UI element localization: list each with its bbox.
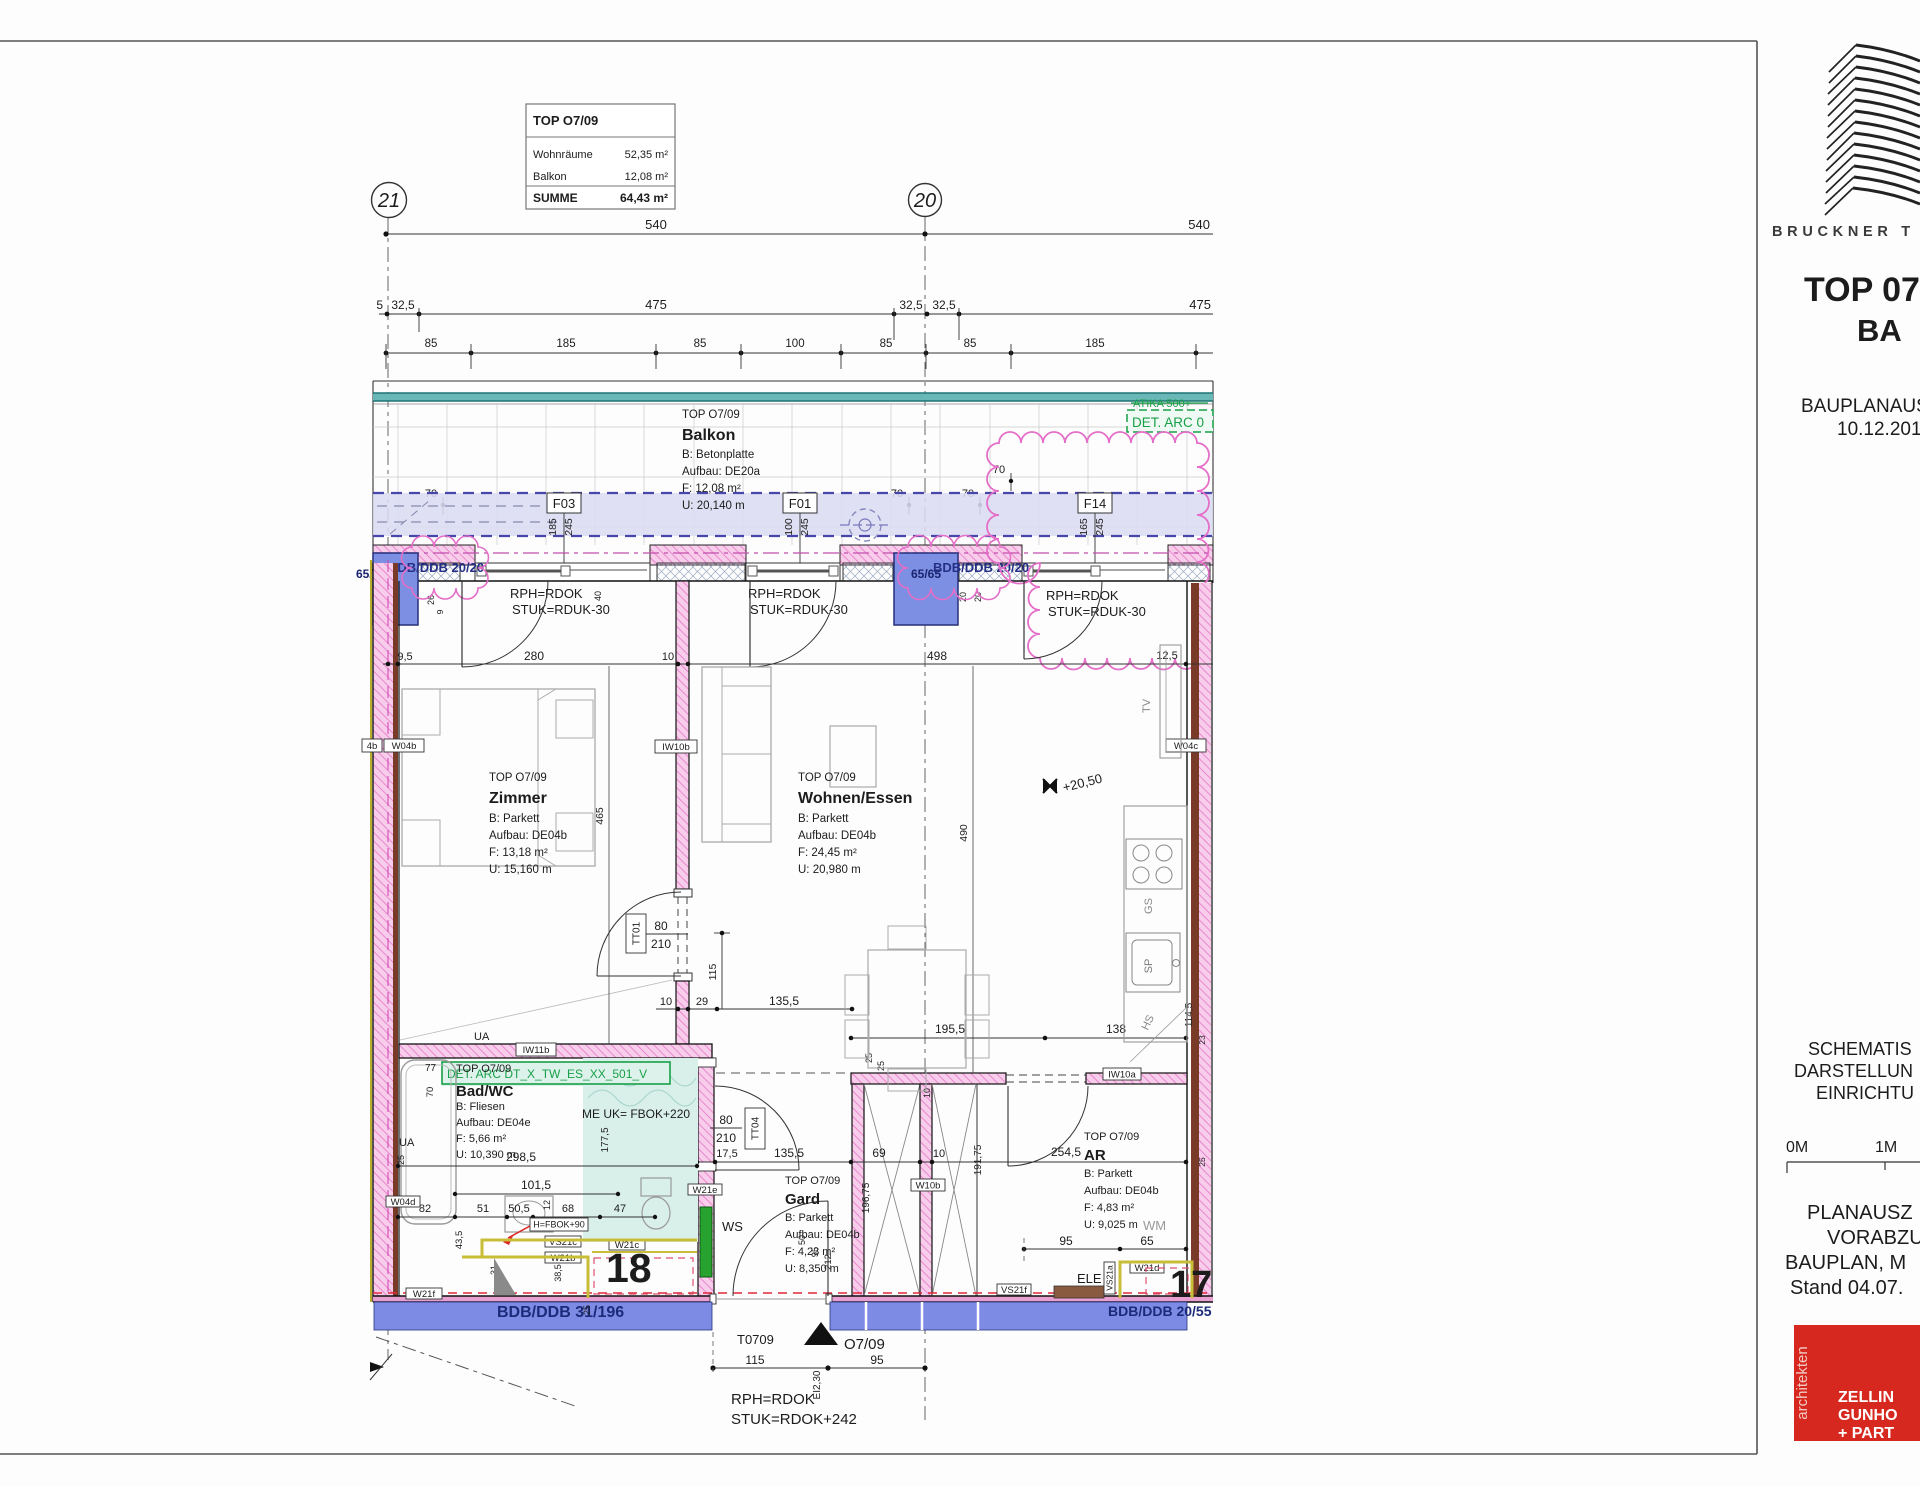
- svg-text:Balkon: Balkon: [682, 427, 735, 444]
- svg-text:W04d: W04d: [391, 1197, 416, 1208]
- svg-text:W21f: W21f: [413, 1289, 436, 1300]
- svg-text:498: 498: [927, 649, 947, 663]
- svg-text:245: 245: [799, 518, 811, 536]
- svg-text:IW10b: IW10b: [662, 742, 689, 753]
- svg-text:85: 85: [425, 338, 438, 350]
- svg-text:F14: F14: [1084, 496, 1106, 511]
- svg-text:F: 4,83 m²: F: 4,83 m²: [1084, 1202, 1134, 1214]
- svg-text:80: 80: [719, 1113, 733, 1127]
- svg-text:10: 10: [660, 996, 672, 1008]
- svg-text:BDB/DDB 31/196: BDB/DDB 31/196: [497, 1304, 624, 1321]
- svg-text:ATIKA 500+: ATIKA 500+: [1133, 398, 1191, 410]
- svg-text:IW11b: IW11b: [523, 1045, 550, 1056]
- svg-text:B: Betonplatte: B: Betonplatte: [682, 449, 754, 461]
- svg-text:VS21f: VS21f: [1001, 1285, 1027, 1296]
- svg-text:architekten: architekten: [1794, 1346, 1811, 1419]
- svg-text:135,5: 135,5: [774, 1146, 804, 1160]
- svg-text:BA: BA: [1857, 313, 1902, 348]
- svg-text:254,5: 254,5: [1051, 1145, 1081, 1159]
- svg-text:23: 23: [1197, 1035, 1207, 1045]
- svg-text:12: 12: [542, 1200, 552, 1210]
- svg-text:AR: AR: [1084, 1147, 1106, 1164]
- svg-text:10: 10: [662, 651, 674, 663]
- svg-text:WS: WS: [722, 1219, 743, 1234]
- svg-text:50,5: 50,5: [508, 1203, 529, 1215]
- svg-text:SP: SP: [1143, 959, 1155, 974]
- svg-text:RPH=RDOK: RPH=RDOK: [731, 1391, 815, 1408]
- svg-text:135,5: 135,5: [769, 994, 799, 1008]
- svg-text:TV: TV: [1141, 698, 1153, 713]
- svg-text:U: 15,160 m: U: 15,160 m: [489, 864, 552, 876]
- svg-text:540: 540: [645, 217, 667, 232]
- svg-text:80: 80: [654, 919, 668, 933]
- svg-text:475: 475: [645, 297, 667, 312]
- svg-text:5: 5: [376, 298, 383, 312]
- svg-text:100: 100: [783, 518, 795, 536]
- svg-text:10.12.201: 10.12.201: [1837, 419, 1920, 440]
- svg-text:TOP 07: TOP 07: [1804, 271, 1920, 309]
- svg-text:85: 85: [880, 338, 893, 350]
- svg-text:U: 20,980 m: U: 20,980 m: [798, 864, 861, 876]
- svg-text:TOP O7/09: TOP O7/09: [682, 409, 740, 421]
- svg-text:ELE: ELE: [1077, 1271, 1102, 1286]
- svg-text:191,75: 191,75: [973, 1144, 984, 1175]
- svg-text:F01: F01: [789, 496, 811, 511]
- svg-text:475: 475: [1189, 297, 1211, 312]
- svg-text:25: 25: [876, 1061, 886, 1071]
- svg-text:Stand 04.07.: Stand 04.07.: [1790, 1277, 1903, 1299]
- svg-text:64,43 m²: 64,43 m²: [620, 191, 668, 205]
- svg-text:ZELLIN: ZELLIN: [1838, 1389, 1894, 1406]
- svg-text:W10b: W10b: [916, 1180, 941, 1191]
- svg-text:F: 24,45 m²: F: 24,45 m²: [798, 847, 857, 859]
- svg-text:TOP O7/09: TOP O7/09: [1084, 1131, 1139, 1143]
- svg-text:185: 185: [556, 338, 575, 350]
- svg-text:18: 18: [606, 1245, 652, 1291]
- svg-text:465: 465: [594, 807, 606, 825]
- svg-text:185: 185: [1085, 338, 1104, 350]
- svg-text:25: 25: [582, 1305, 592, 1315]
- svg-text:PLANAUSZ: PLANAUSZ: [1807, 1202, 1913, 1224]
- svg-text:BDB/DDB 20/20: BDB/DDB 20/20: [933, 560, 1029, 575]
- svg-text:Balkon: Balkon: [533, 171, 567, 183]
- svg-text:TOP O7/09: TOP O7/09: [489, 772, 547, 784]
- svg-text:TOP O7/09: TOP O7/09: [798, 772, 856, 784]
- svg-text:138: 138: [1106, 1022, 1126, 1036]
- svg-text:177,5: 177,5: [600, 1127, 611, 1152]
- svg-text:Gard: Gard: [785, 1191, 820, 1208]
- svg-text:65: 65: [1140, 1234, 1154, 1248]
- svg-text:4b: 4b: [367, 741, 378, 752]
- svg-text:245: 245: [563, 518, 575, 536]
- svg-text:52,35 m²: 52,35 m²: [625, 149, 669, 161]
- svg-text:F03: F03: [553, 496, 575, 511]
- svg-text:40: 40: [593, 591, 603, 601]
- svg-text:IW10a: IW10a: [1108, 1069, 1136, 1080]
- svg-text:U: 9,025 m: U: 9,025 m: [1084, 1219, 1138, 1231]
- svg-text:UA: UA: [399, 1137, 415, 1149]
- svg-text:32,5: 32,5: [899, 298, 923, 312]
- svg-text:SUMME: SUMME: [533, 191, 578, 205]
- svg-text:29: 29: [696, 996, 708, 1008]
- svg-text:VS21a: VS21a: [1104, 1265, 1114, 1291]
- svg-text:B: Fliesen: B: Fliesen: [456, 1101, 505, 1113]
- svg-text:212: 212: [823, 1254, 834, 1270]
- svg-text:85: 85: [694, 338, 707, 350]
- svg-text:10: 10: [933, 1148, 945, 1160]
- svg-text:F: 13,18 m²: F: 13,18 m²: [489, 847, 548, 859]
- svg-text:VORABZU: VORABZU: [1827, 1227, 1920, 1249]
- svg-text:490: 490: [958, 824, 970, 842]
- svg-text:1M: 1M: [1875, 1139, 1897, 1156]
- svg-text:SCHEMATIS: SCHEMATIS: [1808, 1039, 1912, 1059]
- svg-text:VS21c: VS21c: [549, 1237, 577, 1248]
- svg-text:RPH=RDOK: RPH=RDOK: [748, 586, 821, 601]
- svg-text:69: 69: [872, 1146, 886, 1160]
- svg-text:Aufbau: DE04b: Aufbau: DE04b: [489, 830, 567, 842]
- svg-text:Aufbau: DE04b: Aufbau: DE04b: [798, 830, 876, 842]
- svg-text:85: 85: [964, 338, 977, 350]
- svg-text:W04c: W04c: [1174, 741, 1199, 752]
- svg-text:Wohnen/Essen: Wohnen/Essen: [798, 790, 912, 807]
- svg-text:Wohnräume: Wohnräume: [533, 149, 593, 161]
- svg-text:O7/09: O7/09: [844, 1336, 885, 1353]
- svg-text:W04b: W04b: [392, 741, 417, 752]
- svg-text:9: 9: [435, 609, 445, 614]
- svg-text:32,5: 32,5: [932, 298, 956, 312]
- svg-text:RPH=RDOK: RPH=RDOK: [1046, 588, 1119, 603]
- svg-text:20: 20: [913, 190, 936, 212]
- svg-text:77: 77: [425, 1063, 437, 1074]
- svg-text:245: 245: [1094, 518, 1106, 536]
- svg-text:STUK=RDUK-30: STUK=RDUK-30: [1048, 604, 1146, 619]
- svg-text:DARSTELLUN: DARSTELLUN: [1794, 1061, 1913, 1081]
- svg-text:B: Parkett: B: Parkett: [785, 1212, 833, 1224]
- svg-text:STUK=RDUK-30: STUK=RDUK-30: [512, 602, 610, 617]
- svg-text:115: 115: [745, 1353, 764, 1367]
- svg-text:TOP O7/09: TOP O7/09: [785, 1175, 840, 1187]
- svg-text:U: 20,140 m: U: 20,140 m: [682, 500, 745, 512]
- svg-text:21: 21: [377, 190, 400, 212]
- svg-text:50: 50: [797, 1235, 807, 1245]
- svg-text:12,08 m²: 12,08 m²: [625, 171, 669, 183]
- svg-text:196,75: 196,75: [861, 1182, 872, 1213]
- svg-text:25: 25: [1197, 1157, 1207, 1167]
- svg-text:43,5: 43,5: [454, 1231, 465, 1250]
- svg-text:STUK=RDOK+242: STUK=RDOK+242: [731, 1411, 857, 1428]
- svg-text:Aufbau: DE20a: Aufbau: DE20a: [682, 466, 761, 478]
- svg-text:Aufbau: DE04e: Aufbau: DE04e: [456, 1117, 531, 1129]
- svg-text:BRUCKNER T: BRUCKNER T: [1772, 224, 1915, 240]
- svg-text:Bad/WC: Bad/WC: [456, 1083, 514, 1100]
- svg-text:TOP O7/09: TOP O7/09: [533, 113, 598, 128]
- svg-text:H=FBOK+90: H=FBOK+90: [533, 1220, 585, 1230]
- svg-text:+ PART: + PART: [1838, 1425, 1894, 1442]
- svg-text:210: 210: [716, 1131, 736, 1145]
- svg-text:38,5: 38,5: [553, 1264, 563, 1282]
- svg-text:TT01: TT01: [632, 921, 643, 945]
- svg-text:114,5: 114,5: [1184, 1002, 1195, 1027]
- svg-text:210: 210: [651, 937, 671, 951]
- svg-text:68: 68: [562, 1203, 574, 1215]
- svg-text:B: Parkett: B: Parkett: [1084, 1168, 1132, 1180]
- svg-text:EINRICHTU: EINRICHTU: [1816, 1083, 1914, 1103]
- svg-text:ME UK= FBOK+220: ME UK= FBOK+220: [582, 1107, 690, 1121]
- svg-text:F: 12,08 m²: F: 12,08 m²: [682, 483, 741, 495]
- svg-text:95: 95: [1059, 1234, 1073, 1248]
- svg-text:95: 95: [870, 1353, 884, 1367]
- svg-text:BAUPLAN, M: BAUPLAN, M: [1785, 1252, 1906, 1274]
- svg-text:DET. ARC 0: DET. ARC 0: [1132, 415, 1204, 430]
- svg-text:10: 10: [922, 1088, 932, 1098]
- svg-text:GS: GS: [1143, 898, 1155, 914]
- svg-text:115: 115: [707, 963, 719, 980]
- svg-text:540: 540: [1188, 217, 1210, 232]
- svg-text:W21e: W21e: [693, 1185, 718, 1196]
- svg-text:TT04: TT04: [751, 1116, 762, 1140]
- svg-text:101,5: 101,5: [521, 1178, 551, 1192]
- svg-text:165: 165: [1078, 518, 1090, 536]
- svg-text:280: 280: [524, 649, 544, 663]
- svg-text:25: 25: [396, 1155, 406, 1165]
- svg-text:0M: 0M: [1786, 1139, 1808, 1156]
- svg-text:82: 82: [419, 1203, 431, 1215]
- svg-text:70: 70: [425, 1087, 436, 1098]
- svg-text:Zimmer: Zimmer: [489, 790, 547, 807]
- svg-text:95: 95: [810, 1247, 821, 1258]
- svg-text:47: 47: [614, 1203, 626, 1215]
- svg-text:TOP O7/09: TOP O7/09: [456, 1063, 511, 1075]
- svg-text:T0709: T0709: [737, 1332, 774, 1347]
- svg-text:UA: UA: [474, 1031, 490, 1043]
- svg-text:195,5: 195,5: [935, 1022, 965, 1036]
- svg-text:BAUPLANAUS: BAUPLANAUS: [1801, 396, 1920, 417]
- svg-text:B: Parkett: B: Parkett: [489, 813, 540, 825]
- svg-text:Aufbau: DE04b: Aufbau: DE04b: [1084, 1185, 1159, 1197]
- svg-text:185: 185: [547, 518, 559, 536]
- svg-text:298,5: 298,5: [506, 1150, 536, 1164]
- svg-text:F: 5,66 m²: F: 5,66 m²: [456, 1133, 506, 1145]
- svg-text:17,5: 17,5: [716, 1148, 737, 1160]
- svg-text:32,5: 32,5: [391, 298, 415, 312]
- svg-text:51: 51: [477, 1203, 489, 1215]
- svg-text:17: 17: [1170, 1264, 1212, 1306]
- svg-text:B: Parkett: B: Parkett: [798, 813, 849, 825]
- svg-text:GUNHO: GUNHO: [1838, 1407, 1898, 1424]
- svg-text:9,5: 9,5: [397, 651, 412, 663]
- svg-text:WM: WM: [1143, 1218, 1166, 1233]
- svg-text:100: 100: [785, 338, 804, 350]
